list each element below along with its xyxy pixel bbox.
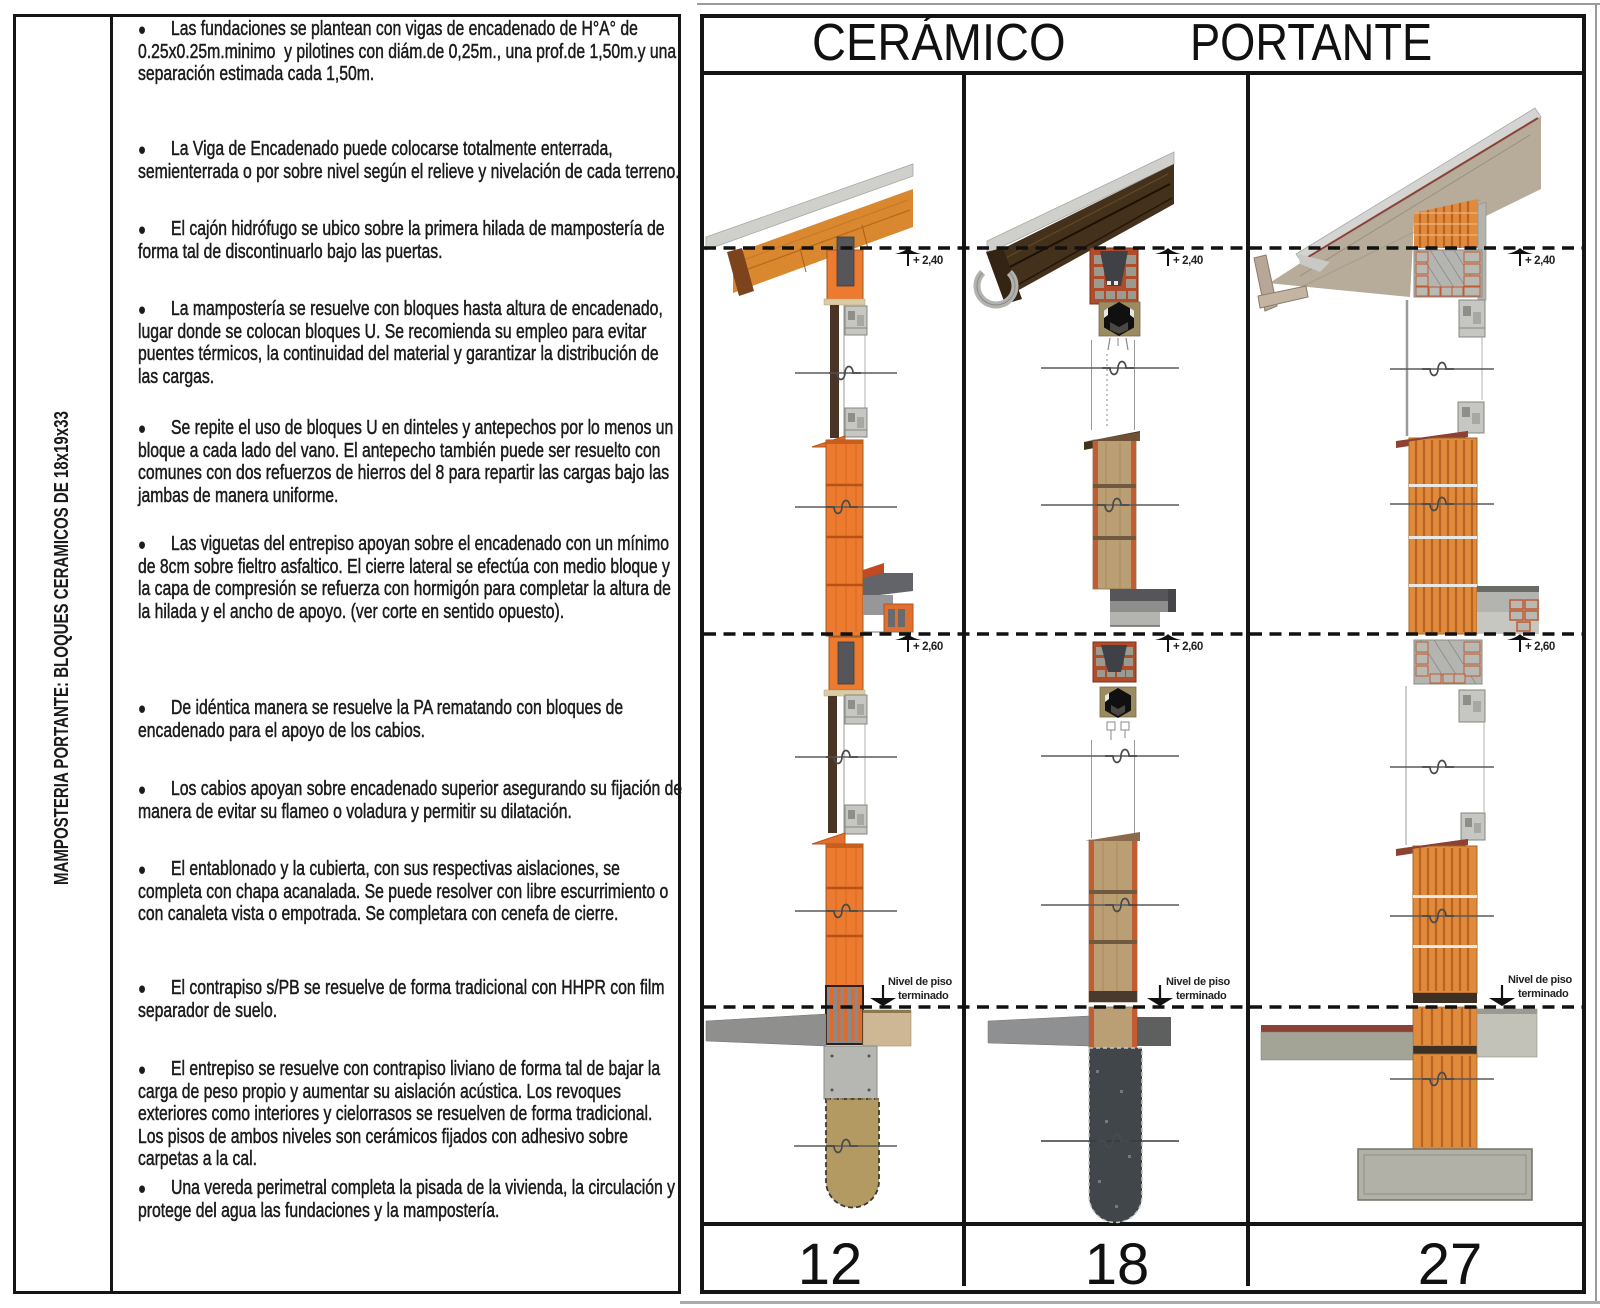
svg-text:terminado: terminado	[898, 990, 949, 1002]
svg-text:terminado: terminado	[1518, 988, 1569, 1000]
svg-text:+ 2,60: + 2,60	[1525, 641, 1555, 653]
svg-text:+ 2,60: + 2,60	[913, 641, 943, 653]
svg-text:Nivel de piso: Nivel de piso	[1166, 976, 1231, 988]
svg-text:Nivel de piso: Nivel de piso	[1508, 974, 1573, 986]
svg-text:+ 2,40: + 2,40	[913, 255, 943, 267]
svg-text:+ 2,40: + 2,40	[1525, 255, 1555, 267]
svg-text:+ 2,60: + 2,60	[1173, 641, 1203, 653]
svg-text:Nivel de piso: Nivel de piso	[888, 976, 953, 988]
svg-text:+ 2,40: + 2,40	[1173, 255, 1203, 267]
svg-text:terminado: terminado	[1176, 990, 1227, 1002]
